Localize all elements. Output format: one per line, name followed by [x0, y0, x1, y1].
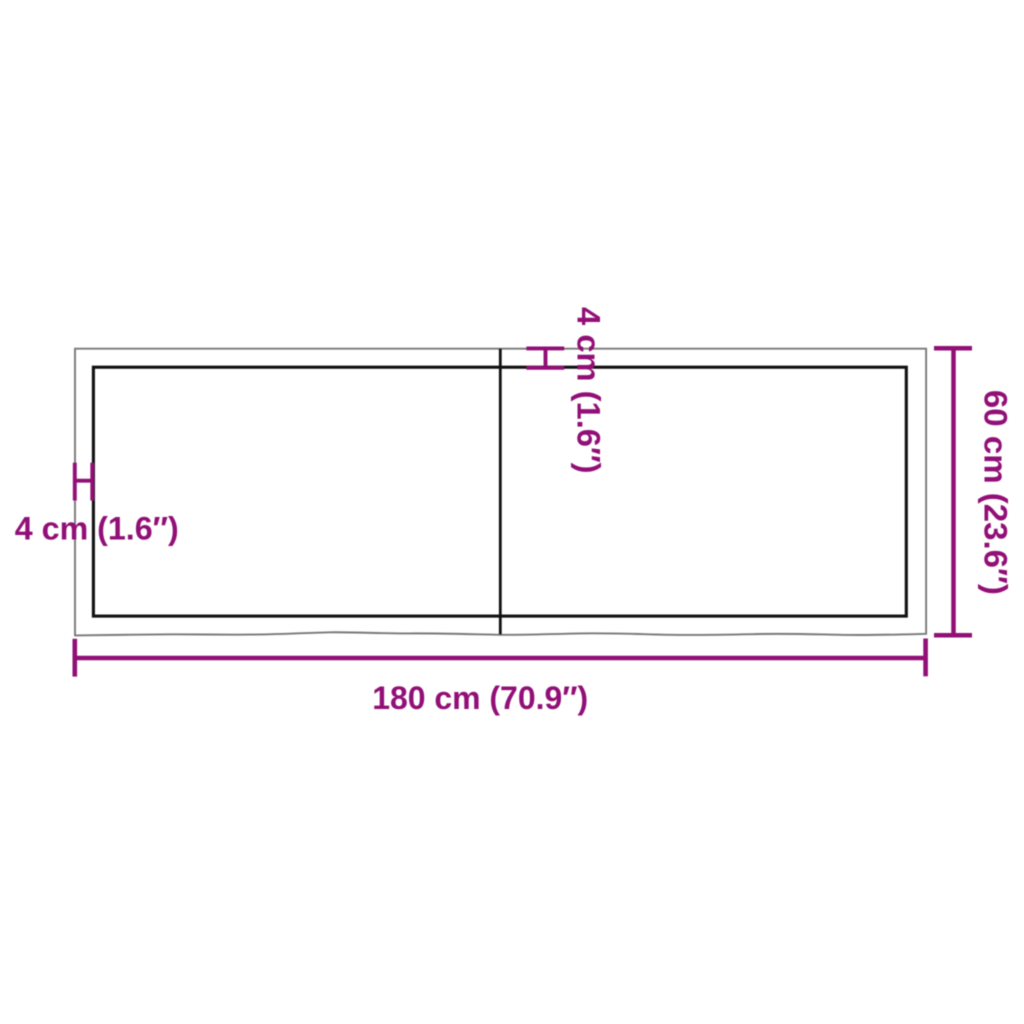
svg-text:4 cm (1.6″): 4 cm (1.6″): [15, 510, 179, 547]
svg-text:180 cm (70.9″): 180 cm (70.9″): [372, 679, 588, 716]
svg-text:60 cm (23.6″): 60 cm (23.6″): [977, 390, 1014, 595]
svg-text:4 cm (1.6″): 4 cm (1.6″): [571, 307, 608, 474]
